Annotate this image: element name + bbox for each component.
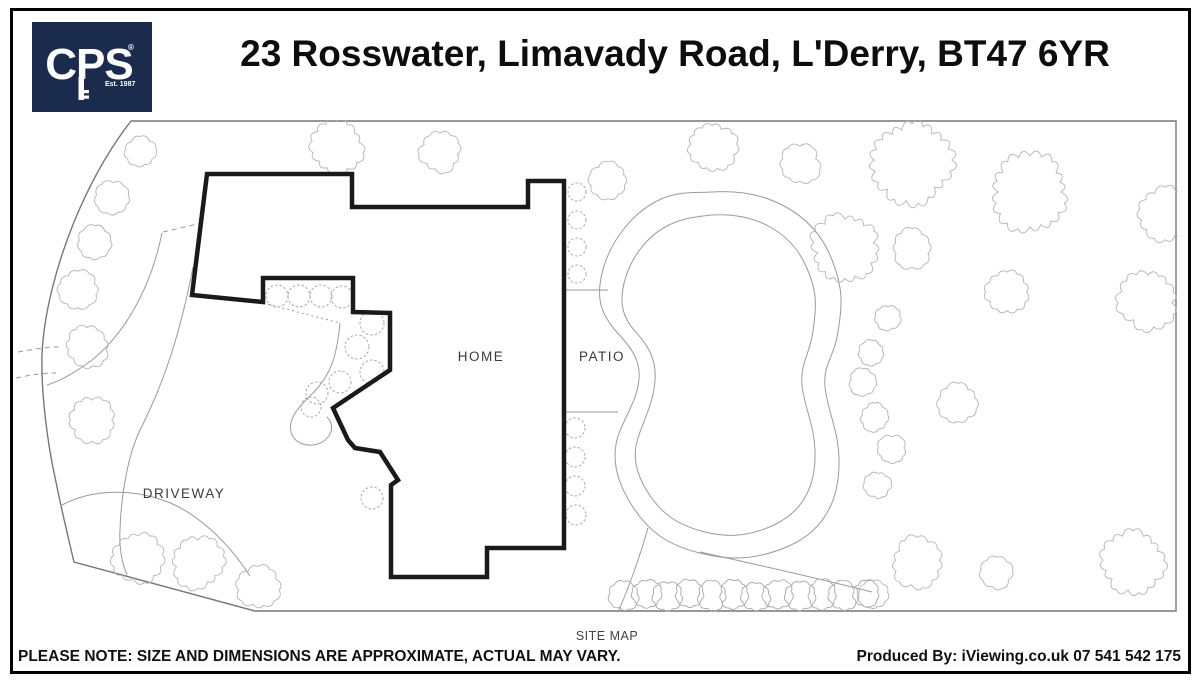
shrub bbox=[310, 285, 332, 307]
lawn-outline-outer bbox=[600, 192, 842, 558]
shrub bbox=[568, 183, 586, 201]
key-tooth-2 bbox=[84, 96, 89, 99]
shrub bbox=[329, 371, 351, 393]
home-label: HOME bbox=[458, 349, 505, 364]
tree bbox=[849, 368, 877, 397]
key-tooth-1 bbox=[84, 90, 89, 93]
shrub bbox=[566, 505, 586, 525]
tree bbox=[57, 270, 98, 310]
tree bbox=[418, 131, 461, 173]
tree bbox=[892, 535, 942, 590]
bottom-path-curve-left bbox=[619, 528, 648, 610]
driveway-bed-curve bbox=[62, 492, 250, 576]
tree bbox=[863, 472, 892, 498]
tree bbox=[893, 227, 931, 269]
produced-by-text: Produced By: iViewing.co.uk 07 541 542 1… bbox=[856, 648, 1181, 666]
boundary-dashed-2 bbox=[16, 373, 56, 378]
page-title: 23 Rosswater, Limavady Road, L'Derry, BT… bbox=[165, 33, 1185, 75]
bush bbox=[608, 581, 639, 611]
tree bbox=[687, 123, 738, 171]
bush bbox=[853, 580, 879, 608]
tree bbox=[77, 225, 111, 260]
tree bbox=[1116, 271, 1177, 333]
tree bbox=[992, 151, 1067, 233]
tree bbox=[66, 325, 108, 368]
site-map-drawing: HOME PATIO DRIVEWAY SITE MAP bbox=[0, 0, 1200, 682]
tree bbox=[1137, 185, 1193, 242]
shrub bbox=[568, 265, 586, 283]
shrub bbox=[565, 447, 585, 467]
driveway-label: DRIVEWAY bbox=[143, 486, 226, 501]
bottom-path-curve-right bbox=[700, 552, 872, 592]
shrub bbox=[568, 238, 586, 256]
tree bbox=[984, 270, 1029, 313]
tree bbox=[588, 161, 627, 200]
tree bbox=[810, 213, 879, 283]
tree bbox=[858, 340, 883, 367]
cps-logo: CPS Est. 1987 ® bbox=[32, 22, 152, 112]
tree bbox=[110, 532, 165, 584]
tree bbox=[869, 120, 956, 208]
bush bbox=[652, 582, 683, 611]
tree bbox=[309, 119, 365, 175]
site-map-page: HOME PATIO DRIVEWAY SITE MAP CPS Est. 19… bbox=[0, 0, 1200, 682]
tree bbox=[937, 382, 979, 423]
key-shaft bbox=[79, 77, 85, 100]
tree bbox=[877, 435, 905, 463]
driveway-curve-outer bbox=[47, 233, 162, 385]
garden-bed-curve bbox=[290, 323, 340, 445]
tree bbox=[94, 181, 129, 215]
shrub bbox=[361, 487, 383, 509]
lawn-outline-inner bbox=[622, 215, 816, 536]
shrub bbox=[568, 211, 586, 229]
bush bbox=[741, 582, 771, 611]
tree bbox=[124, 136, 156, 167]
tree bbox=[1099, 529, 1167, 596]
shrub bbox=[331, 286, 353, 308]
shrub bbox=[301, 397, 321, 417]
tree bbox=[861, 403, 889, 433]
tree bbox=[780, 144, 821, 184]
garden-bed-dotted-line bbox=[263, 303, 340, 323]
driveway-curve-inner bbox=[120, 267, 193, 575]
tree bbox=[172, 536, 226, 591]
disclaimer-text: PLEASE NOTE: SIZE AND DIMENSIONS ARE APP… bbox=[18, 648, 621, 666]
site-map-caption: SITE MAP bbox=[576, 629, 638, 643]
shrub bbox=[565, 418, 585, 438]
shrub bbox=[565, 476, 585, 496]
cps-logo-graphic: CPS Est. 1987 ® bbox=[32, 22, 152, 112]
tree bbox=[875, 306, 902, 331]
bush bbox=[631, 580, 662, 609]
shrub bbox=[345, 335, 369, 359]
tree bbox=[236, 565, 281, 608]
tree bbox=[979, 556, 1013, 590]
registered-mark: ® bbox=[128, 43, 134, 52]
boundary-dashed-1 bbox=[18, 347, 60, 352]
shrub bbox=[266, 285, 288, 307]
logo-established-text: Est. 1987 bbox=[105, 81, 135, 88]
shrub bbox=[306, 382, 328, 404]
shrub bbox=[288, 285, 310, 307]
house-outline bbox=[192, 174, 564, 577]
tree bbox=[69, 397, 114, 444]
patio-label: PATIO bbox=[579, 349, 625, 364]
